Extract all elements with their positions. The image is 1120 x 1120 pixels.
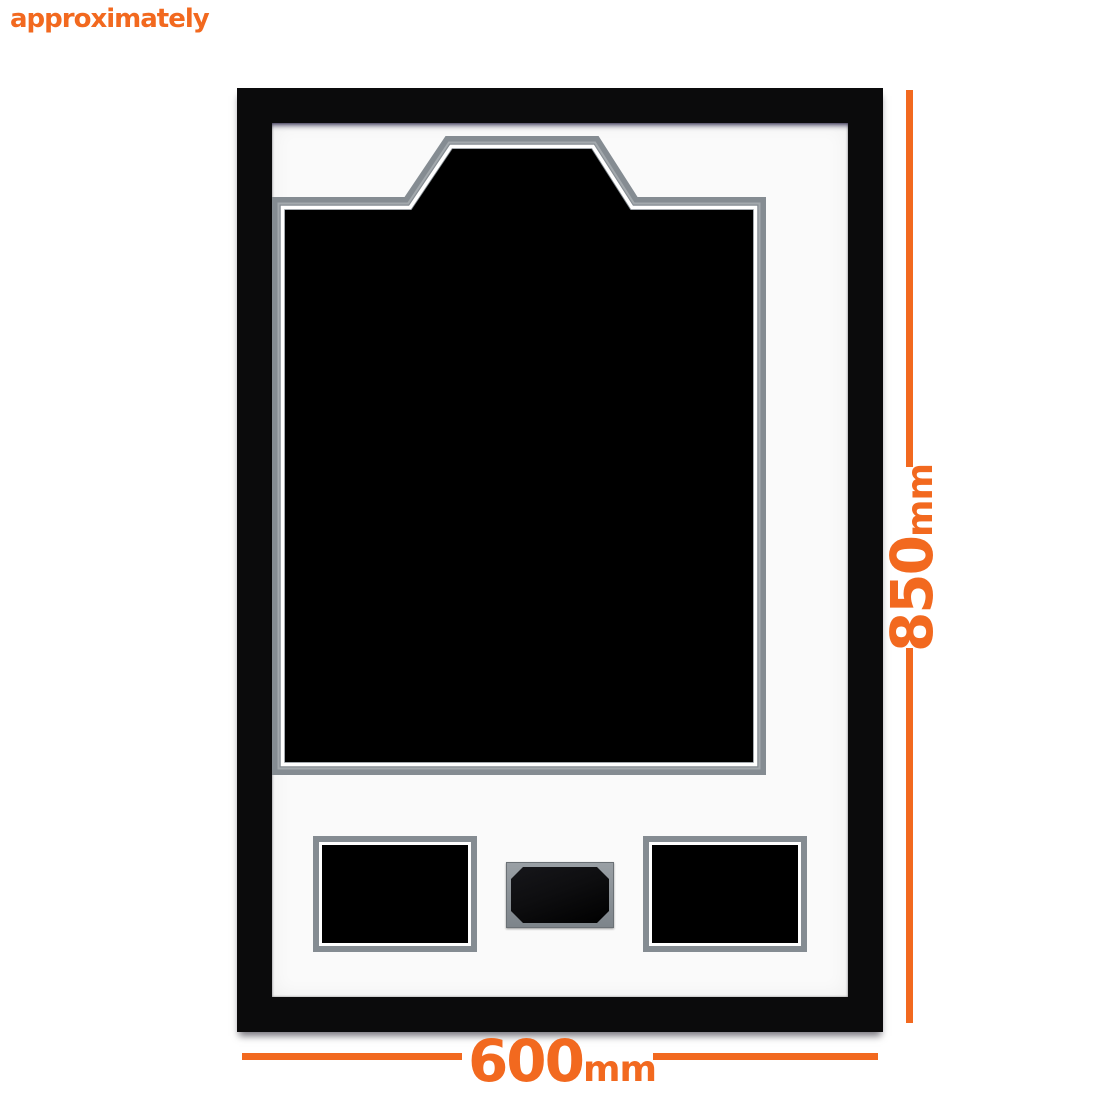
right-photo-aperture <box>643 836 807 952</box>
picture-frame <box>237 88 883 1032</box>
width-value: 600 <box>468 1027 583 1095</box>
height-dimension-label: 850mm <box>883 464 941 652</box>
frame-mount <box>272 123 848 997</box>
left-photo-aperture <box>313 836 477 952</box>
height-value: 850 <box>878 537 946 652</box>
plaque-face <box>511 867 609 923</box>
plaque <box>506 862 614 928</box>
approximately-label: approximately <box>10 4 209 34</box>
jersey-aperture <box>268 35 770 779</box>
width-dimension-line-right <box>653 1053 878 1060</box>
height-dimension-line-top <box>906 90 913 467</box>
width-dimension-line-left <box>242 1053 462 1060</box>
height-dimension-line-bottom <box>906 648 913 1023</box>
width-dimension-label: 600mm <box>468 1032 656 1090</box>
height-unit: mm <box>900 464 941 537</box>
width-unit: mm <box>583 1049 656 1090</box>
